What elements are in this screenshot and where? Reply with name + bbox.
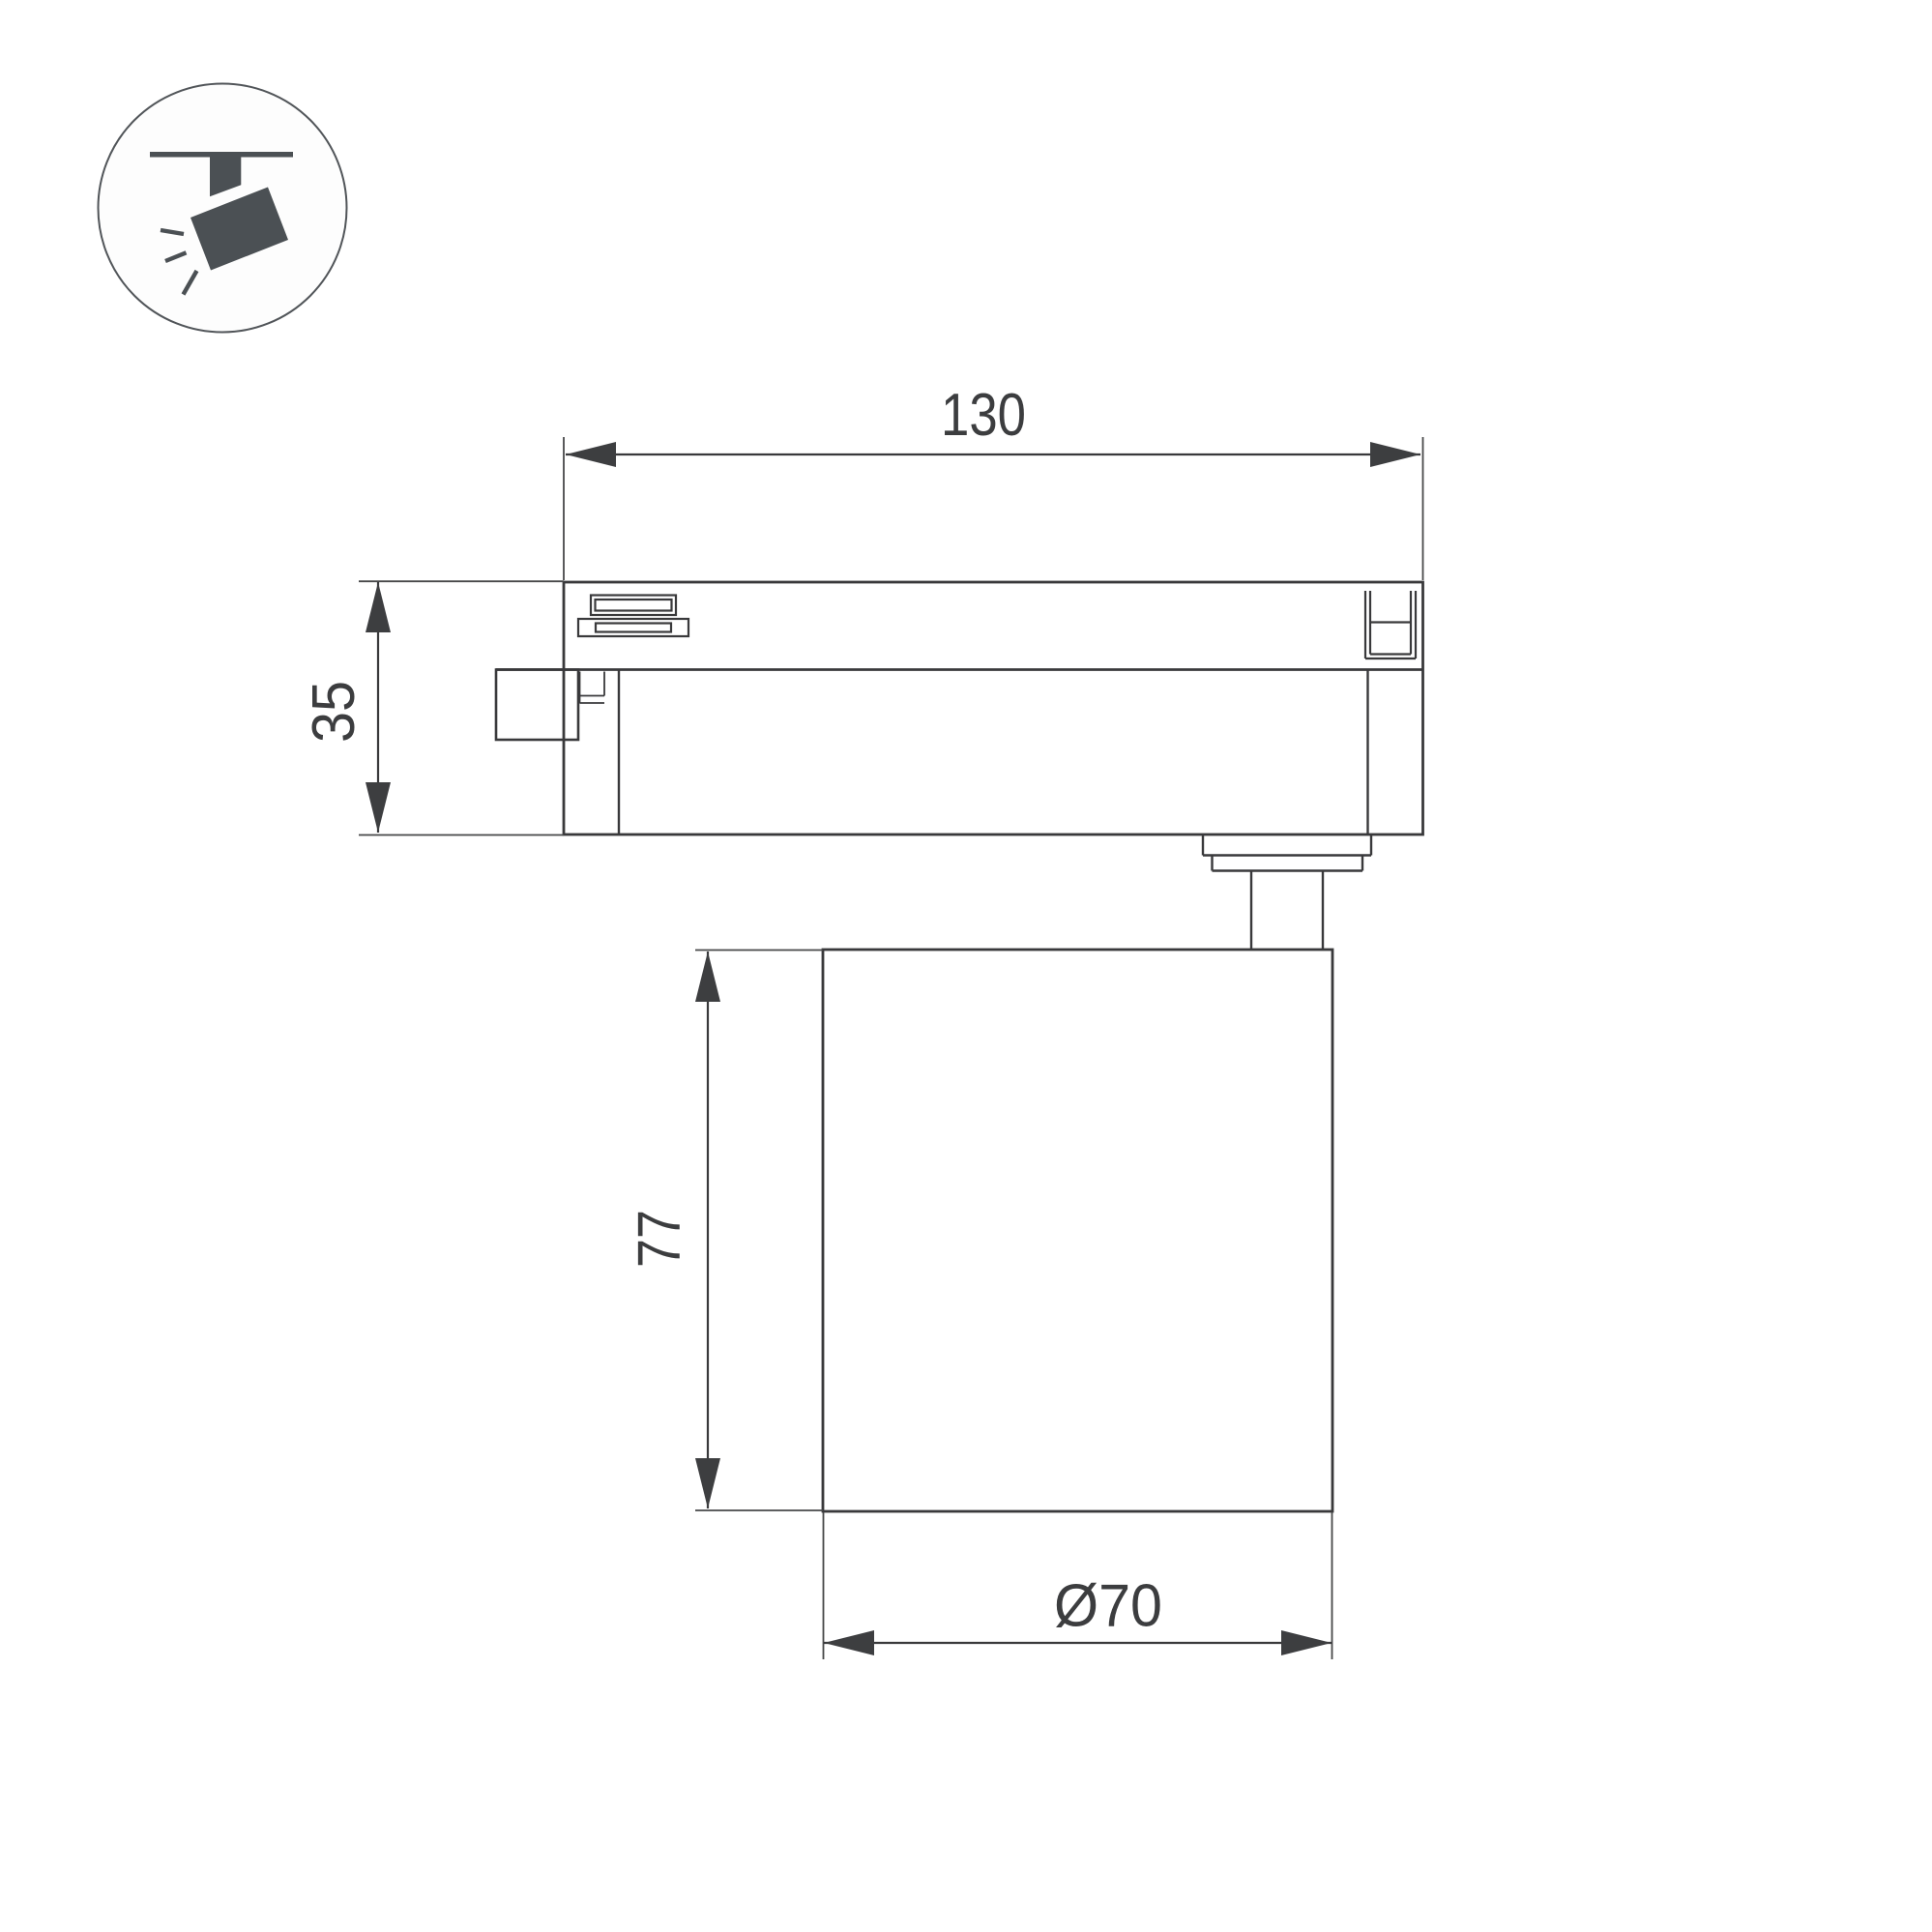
svg-text:35: 35 <box>301 681 367 743</box>
svg-text:Ø70: Ø70 <box>1054 1573 1162 1640</box>
svg-text:77: 77 <box>627 1210 693 1268</box>
svg-text:130: 130 <box>941 382 1026 449</box>
